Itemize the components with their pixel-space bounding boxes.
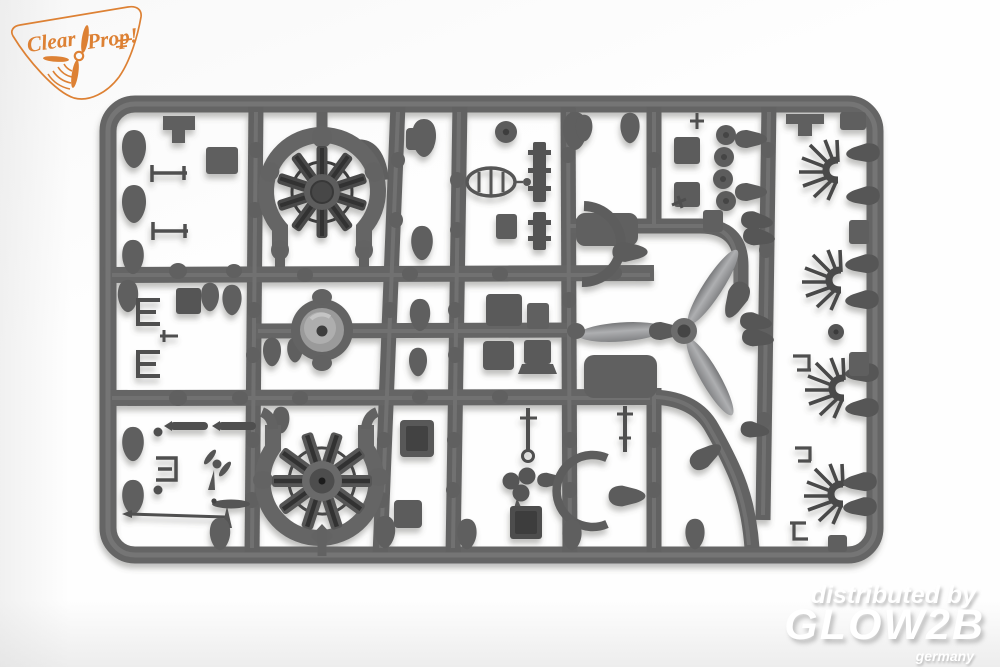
svg-text:Prop!: Prop!: [84, 23, 139, 54]
svg-text:Clear: Clear: [25, 26, 77, 57]
